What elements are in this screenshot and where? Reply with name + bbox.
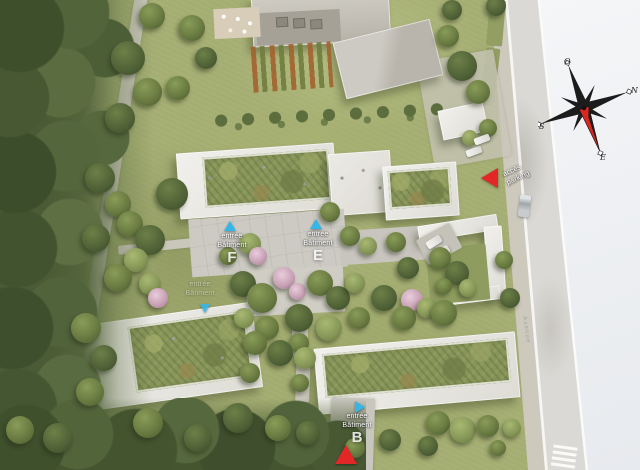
tree bbox=[418, 436, 438, 456]
building-b-letter: B bbox=[332, 429, 382, 446]
blossom-tree bbox=[289, 283, 306, 300]
entrance-label-e: entrée Bâtiment bbox=[294, 231, 342, 248]
tree bbox=[466, 80, 490, 104]
building-f-letter: F bbox=[208, 249, 256, 266]
tree bbox=[156, 178, 188, 210]
tree bbox=[296, 421, 320, 445]
tree bbox=[450, 417, 476, 443]
entrance-secondary-line2: Bâtiment bbox=[185, 290, 214, 297]
tree bbox=[359, 237, 377, 255]
entrance-e-line2: Bâtiment bbox=[303, 240, 332, 247]
tree bbox=[184, 424, 212, 452]
compass-east-label: E bbox=[599, 153, 606, 162]
tree bbox=[6, 416, 34, 444]
roof-vent bbox=[293, 18, 306, 29]
tree bbox=[82, 224, 110, 252]
tree bbox=[76, 378, 104, 406]
tree bbox=[43, 423, 73, 453]
entrance-label-b: entrée Bâtiment bbox=[332, 413, 382, 430]
tree bbox=[195, 47, 217, 69]
tree bbox=[495, 251, 513, 269]
entrance-label-f: entrée Bâtiment bbox=[208, 233, 256, 250]
tree bbox=[500, 288, 520, 308]
tree bbox=[223, 403, 253, 433]
tree bbox=[437, 25, 459, 47]
compass-north-label: N bbox=[630, 86, 638, 95]
entrance-marker-f-icon bbox=[224, 221, 236, 231]
building-e bbox=[382, 161, 460, 220]
tree bbox=[104, 264, 132, 292]
tree bbox=[111, 41, 145, 75]
tree bbox=[490, 440, 506, 456]
tree bbox=[397, 257, 419, 279]
tree bbox=[294, 347, 316, 369]
tree bbox=[326, 286, 350, 310]
tree bbox=[386, 232, 406, 252]
tree bbox=[267, 340, 293, 366]
building-e-green-roof bbox=[388, 167, 452, 209]
tree bbox=[179, 15, 205, 41]
site-plan-render: entrée Bâtiment F entrée Bâtiment E entr… bbox=[0, 0, 640, 470]
entrance-marker-e-icon bbox=[310, 219, 322, 229]
entrance-label-secondary: entrée Bâtiment bbox=[176, 281, 224, 298]
entrance-marker-secondary-icon bbox=[200, 304, 210, 313]
tree bbox=[340, 226, 360, 246]
tree bbox=[348, 307, 370, 329]
tree bbox=[320, 202, 340, 222]
compass-west-label: O bbox=[564, 57, 571, 66]
tree bbox=[442, 0, 462, 20]
tree bbox=[247, 283, 277, 313]
tree bbox=[379, 429, 401, 451]
building-e-letter: E bbox=[294, 247, 342, 264]
dark-roof-section bbox=[256, 9, 342, 45]
tree bbox=[234, 308, 254, 328]
terrace bbox=[213, 7, 261, 39]
tree bbox=[447, 51, 477, 81]
entrance-marker-b-icon bbox=[355, 401, 365, 413]
tree bbox=[371, 285, 397, 311]
garden-beds bbox=[250, 41, 333, 92]
tree bbox=[291, 374, 309, 392]
entrance-b-line1: entrée bbox=[346, 413, 367, 420]
roof-vent bbox=[310, 19, 323, 30]
tree bbox=[477, 415, 499, 437]
tree bbox=[345, 273, 365, 293]
tree bbox=[166, 76, 190, 100]
building-f bbox=[176, 143, 338, 220]
roof-equipment bbox=[176, 143, 338, 220]
compass-south-label: S bbox=[539, 122, 545, 131]
entrance-e-line1: entrée bbox=[307, 231, 328, 238]
tree bbox=[392, 306, 416, 330]
tree bbox=[105, 103, 135, 133]
tree bbox=[436, 278, 452, 294]
entrance-f-line2: Bâtiment bbox=[217, 242, 246, 249]
tree bbox=[285, 304, 313, 332]
blossom-tree bbox=[148, 288, 168, 308]
parking-access-south-marker-icon bbox=[335, 445, 357, 464]
tree bbox=[71, 313, 101, 343]
entrance-secondary-line1: entrée bbox=[189, 281, 210, 288]
tree bbox=[133, 408, 163, 438]
tree bbox=[431, 300, 457, 326]
parking-access-marker-icon bbox=[481, 168, 498, 188]
entrance-f-line1: entrée bbox=[221, 233, 242, 240]
tree bbox=[265, 415, 291, 441]
entrance-b-line2: Bâtiment bbox=[342, 422, 371, 429]
tree bbox=[85, 163, 115, 193]
tree bbox=[240, 363, 260, 383]
tree bbox=[134, 78, 162, 106]
tree bbox=[243, 331, 267, 355]
compass-rose-icon: N E S O bbox=[538, 54, 638, 164]
tree bbox=[426, 411, 450, 435]
tree bbox=[139, 3, 165, 29]
building-b-green-roof bbox=[322, 338, 511, 398]
tree bbox=[91, 345, 117, 371]
roof-vent bbox=[276, 17, 289, 28]
tree bbox=[503, 419, 521, 437]
tree bbox=[459, 279, 477, 297]
tree bbox=[316, 315, 342, 341]
crosswalk bbox=[550, 444, 577, 470]
